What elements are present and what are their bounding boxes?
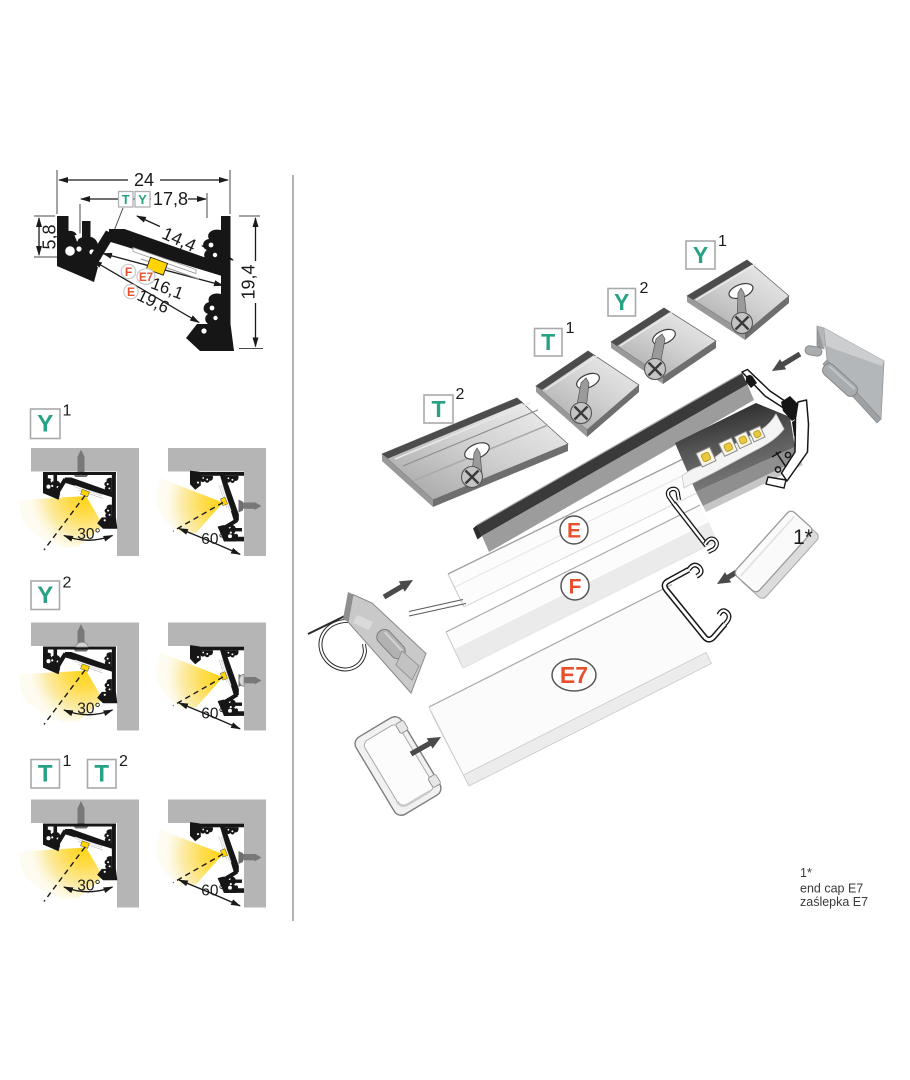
svg-text:zaślepka E7: zaślepka E7: [800, 895, 868, 909]
svg-text:2: 2: [640, 280, 649, 297]
svg-text:2: 2: [63, 575, 72, 592]
svg-text:T: T: [122, 192, 130, 207]
svg-text:1*: 1*: [793, 526, 813, 549]
svg-text:Y: Y: [138, 192, 147, 207]
svg-text:24: 24: [134, 170, 154, 190]
svg-text:end cap E7: end cap E7: [800, 882, 863, 896]
svg-text:2: 2: [456, 386, 465, 403]
svg-text:T: T: [38, 761, 53, 788]
svg-text:E: E: [567, 520, 581, 543]
svg-text:1: 1: [718, 233, 727, 250]
svg-text:Y: Y: [37, 582, 53, 609]
svg-text:T: T: [94, 761, 109, 788]
svg-text:F: F: [125, 265, 132, 279]
svg-text:1: 1: [63, 753, 72, 770]
svg-text:E7: E7: [560, 662, 588, 688]
svg-text:Y: Y: [37, 411, 53, 438]
svg-text:Y: Y: [614, 289, 629, 315]
svg-text:19,4: 19,4: [239, 264, 259, 299]
svg-text:1*: 1*: [800, 866, 812, 880]
svg-text:F: F: [569, 576, 582, 599]
svg-text:E: E: [127, 285, 135, 299]
svg-text:5,8: 5,8: [40, 224, 60, 249]
svg-text:1: 1: [63, 403, 72, 420]
svg-text:2: 2: [119, 753, 128, 770]
svg-text:T: T: [541, 329, 555, 355]
svg-text:17,8: 17,8: [153, 189, 188, 209]
svg-text:Y: Y: [693, 242, 708, 268]
svg-text:1: 1: [566, 320, 575, 337]
svg-text:T: T: [431, 396, 445, 422]
